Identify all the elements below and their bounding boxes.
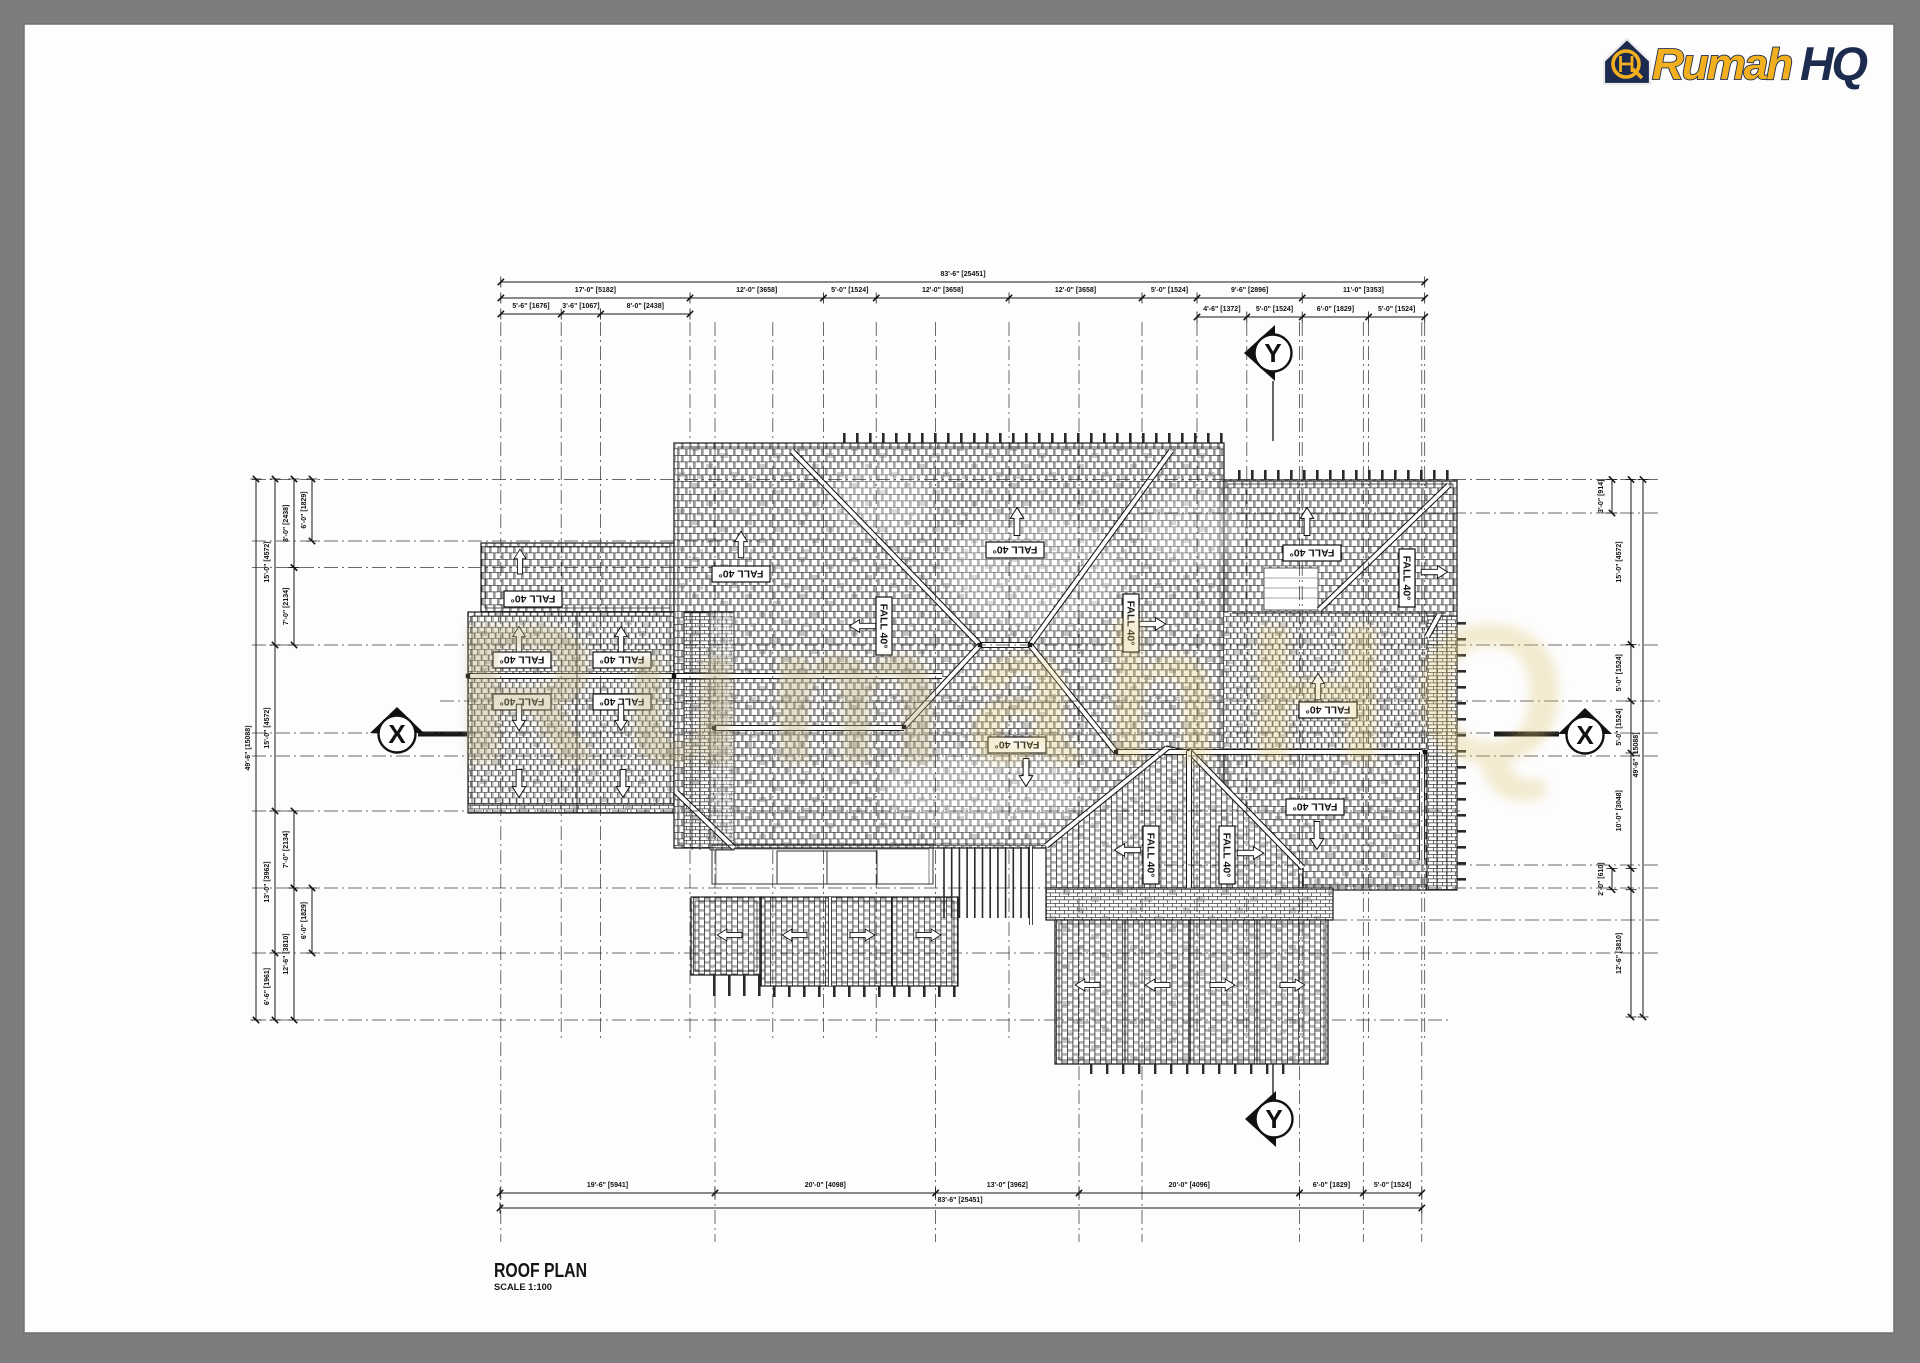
svg-text:19'-6" [5941]: 19'-6" [5941]: [587, 1182, 628, 1189]
svg-text:15'-0" [4572]: 15'-0" [4572]: [264, 541, 271, 582]
svg-text:15'-0" [4572]: 15'-0" [4572]: [1616, 541, 1623, 582]
svg-text:3'-0" [914]: 3'-0" [914]: [1598, 480, 1605, 513]
svg-text:17'-0" [5182]: 17'-0" [5182]: [575, 287, 616, 294]
svg-text:7'-0" [2134]: 7'-0" [2134]: [283, 588, 290, 625]
svg-text:5'-0" [1524]: 5'-0" [1524]: [1256, 306, 1293, 313]
svg-text:4'-6" [1372]: 4'-6" [1372]: [1203, 306, 1240, 313]
svg-text:6'-0" [1829]: 6'-0" [1829]: [1317, 306, 1354, 313]
svg-text:X: X: [1576, 720, 1594, 750]
svg-text:20'-0" [4096]: 20'-0" [4096]: [1169, 1182, 1210, 1189]
svg-text:7'-0" [2134]: 7'-0" [2134]: [283, 831, 290, 868]
svg-text:20'-0" [4098]: 20'-0" [4098]: [805, 1182, 846, 1189]
svg-text:12'-0" [3658]: 12'-0" [3658]: [922, 287, 963, 294]
svg-text:6'-0" [1829]: 6'-0" [1829]: [301, 902, 308, 939]
svg-text:5'-0" [1524]: 5'-0" [1524]: [1616, 708, 1623, 745]
svg-text:X: X: [388, 719, 406, 749]
svg-text:3'-6" [1067]: 3'-6" [1067]: [562, 303, 599, 310]
svg-text:2'-0" [610]: 2'-0" [610]: [1598, 862, 1605, 895]
svg-text:Y: Y: [1265, 1104, 1282, 1134]
svg-text:8'-0" [2438]: 8'-0" [2438]: [283, 505, 290, 542]
svg-text:Rumah: Rumah: [1652, 40, 1792, 89]
svg-text:HQ: HQ: [1800, 37, 1867, 90]
svg-text:12'-0" [3658]: 12'-0" [3658]: [736, 287, 777, 294]
svg-text:5'-0" [1524]: 5'-0" [1524]: [1616, 654, 1623, 691]
svg-text:6'-0" [1829]: 6'-0" [1829]: [301, 491, 308, 528]
svg-text:5'-0" [1524]: 5'-0" [1524]: [1151, 287, 1188, 294]
svg-text:12'-6" [3810]: 12'-6" [3810]: [283, 933, 290, 974]
svg-text:6'-6" [1961]: 6'-6" [1961]: [264, 968, 271, 1005]
svg-text:13'-0" [3962]: 13'-0" [3962]: [264, 861, 271, 902]
svg-text:9'-6" [2896]: 9'-6" [2896]: [1231, 287, 1268, 294]
svg-text:10'-0" [3048]: 10'-0" [3048]: [1616, 790, 1623, 831]
svg-text:Y: Y: [1264, 338, 1281, 368]
svg-text:5'-0" [1524]: 5'-0" [1524]: [1378, 306, 1415, 313]
svg-text:49'-6" [15088]: 49'-6" [15088]: [245, 725, 252, 770]
svg-text:5'-6" [1676]: 5'-6" [1676]: [512, 303, 549, 310]
svg-text:83'-6" [25451]: 83'-6" [25451]: [937, 1197, 982, 1204]
svg-text:15'-0" [4572]: 15'-0" [4572]: [264, 707, 271, 748]
svg-text:Rum: Rum: [455, 583, 967, 804]
svg-text:8'-0" [2438]: 8'-0" [2438]: [627, 303, 664, 310]
svg-text:SCALE 1:100: SCALE 1:100: [494, 1282, 552, 1293]
svg-text:12'-6" [3810]: 12'-6" [3810]: [1616, 933, 1623, 974]
svg-text:ROOF PLAN: ROOF PLAN: [494, 1260, 587, 1282]
svg-text:5'-0" [1524]: 5'-0" [1524]: [1374, 1182, 1411, 1189]
svg-text:13'-0" [3962]: 13'-0" [3962]: [987, 1182, 1028, 1189]
svg-text:5'-0" [1524]: 5'-0" [1524]: [831, 287, 868, 294]
svg-text:83'-6" [25451]: 83'-6" [25451]: [940, 271, 985, 278]
svg-text:12'-0" [3658]: 12'-0" [3658]: [1055, 287, 1096, 294]
svg-text:11'-0" [3353]: 11'-0" [3353]: [1343, 287, 1384, 294]
svg-text:6'-0" [1829]: 6'-0" [1829]: [1313, 1182, 1350, 1189]
